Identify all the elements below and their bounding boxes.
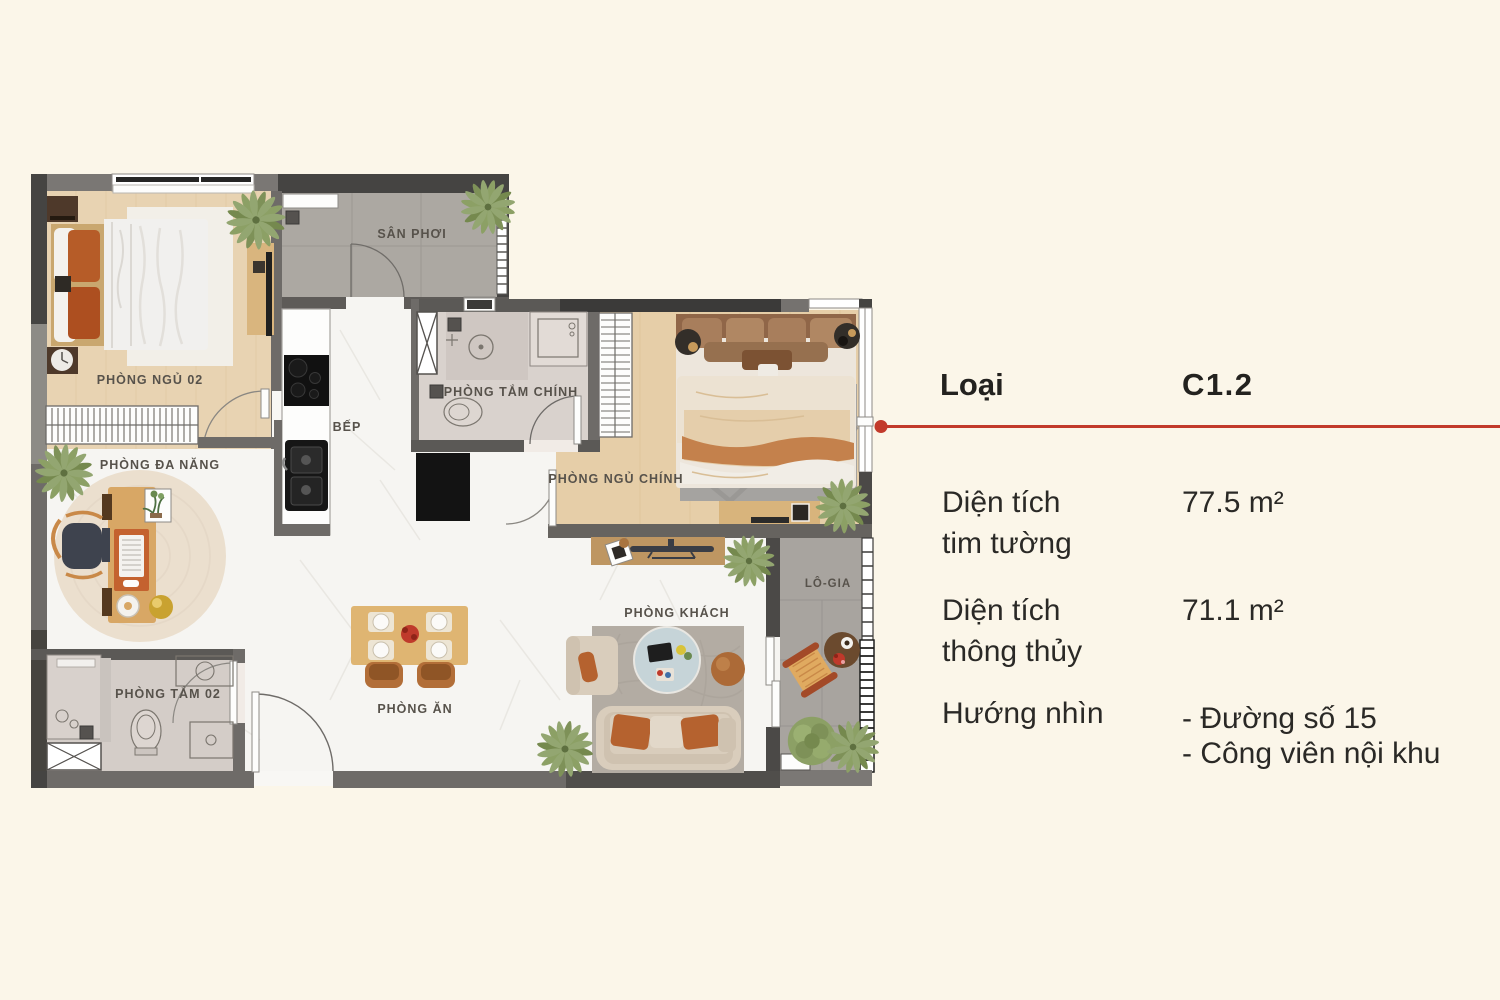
svg-text:PHÒNG NGỦ 02: PHÒNG NGỦ 02 [97, 372, 203, 387]
svg-text:thông thủy: thông thủy [942, 635, 1082, 668]
svg-text:Diện tích: Diện tích [942, 594, 1060, 627]
svg-text:PHÒNG TẮM CHÍNH: PHÒNG TẮM CHÍNH [444, 384, 578, 399]
svg-text:BẾP: BẾP [333, 419, 362, 434]
svg-text:71.1 m²: 71.1 m² [1182, 594, 1284, 627]
svg-text:Loại: Loại [940, 367, 1004, 402]
svg-text:PHÒNG TẮM 02: PHÒNG TẮM 02 [115, 686, 221, 701]
svg-text:SÂN PHƠI: SÂN PHƠI [377, 226, 446, 241]
svg-text:- Công viên nội khu: - Công viên nội khu [1182, 737, 1441, 770]
svg-text:- Đường số 15: - Đường số 15 [1182, 702, 1377, 735]
svg-text:Hướng nhìn: Hướng nhìn [942, 697, 1104, 730]
svg-text:77.5 m²: 77.5 m² [1182, 486, 1284, 519]
svg-text:PHÒNG ĐA NĂNG: PHÒNG ĐA NĂNG [100, 457, 220, 472]
svg-text:PHÒNG NGỦ CHÍNH: PHÒNG NGỦ CHÍNH [548, 471, 683, 486]
svg-text:LÔ-GIA: LÔ-GIA [805, 577, 851, 590]
svg-text:tim tường: tim tường [942, 527, 1072, 560]
svg-text:PHÒNG ĂN: PHÒNG ĂN [377, 701, 452, 716]
svg-text:C1.2: C1.2 [1182, 367, 1253, 402]
svg-text:Diện tích: Diện tích [942, 486, 1060, 519]
svg-text:PHÒNG KHÁCH: PHÒNG KHÁCH [624, 605, 729, 620]
